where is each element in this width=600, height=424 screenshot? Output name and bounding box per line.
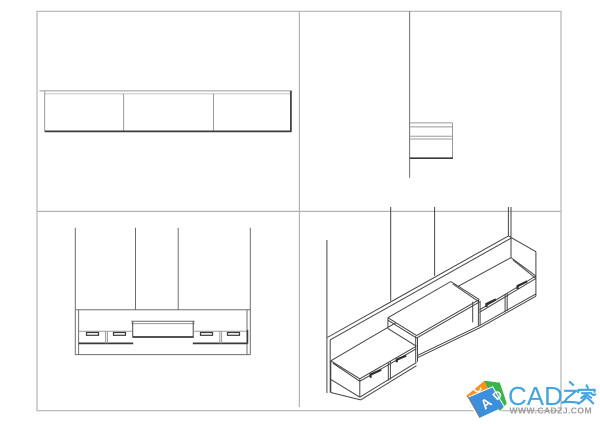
svg-text:WWW.CADZJ.COM: WWW.CADZJ.COM xyxy=(510,406,593,416)
